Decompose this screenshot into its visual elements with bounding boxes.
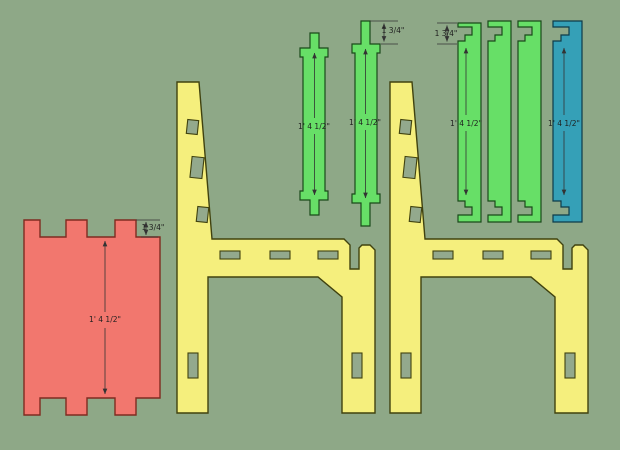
dimension-label: 1 3/4" bbox=[142, 223, 165, 232]
parts-layout-svg: 1' 4 1/2" 1 3/4" 1' 4 1/2" 1' 4 1/2" bbox=[0, 0, 620, 450]
drawing-canvas: 1' 4 1/2" 1 3/4" 1' 4 1/2" 1' 4 1/2" bbox=[0, 0, 620, 450]
dimension-label: 1' 4 1/2" bbox=[89, 315, 121, 324]
part-hook-slat-3[interactable] bbox=[518, 21, 541, 222]
dimension-label: 1' 4 1/2" bbox=[298, 122, 330, 131]
hook-slat-outline[interactable] bbox=[488, 21, 511, 222]
part-hook-slat-teal[interactable]: 1' 4 1/2" bbox=[548, 21, 582, 222]
dimension-label: 1 3/4" bbox=[435, 29, 458, 38]
part-seat-back-panel[interactable]: 1' 4 1/2" 1 3/4" bbox=[24, 220, 164, 415]
part-tenon-slat-1[interactable]: 1' 4 1/2" bbox=[298, 33, 330, 215]
dimension-label: 1' 4 1/2" bbox=[349, 118, 381, 127]
dimension-label: 1' 4 1/2" bbox=[548, 119, 580, 128]
dimension-label: 1' 4 1/2" bbox=[450, 119, 482, 128]
dimension-label: 1 3/4" bbox=[382, 26, 405, 35]
part-hook-slat-2[interactable] bbox=[488, 21, 511, 222]
hook-slat-outline[interactable] bbox=[518, 21, 541, 222]
